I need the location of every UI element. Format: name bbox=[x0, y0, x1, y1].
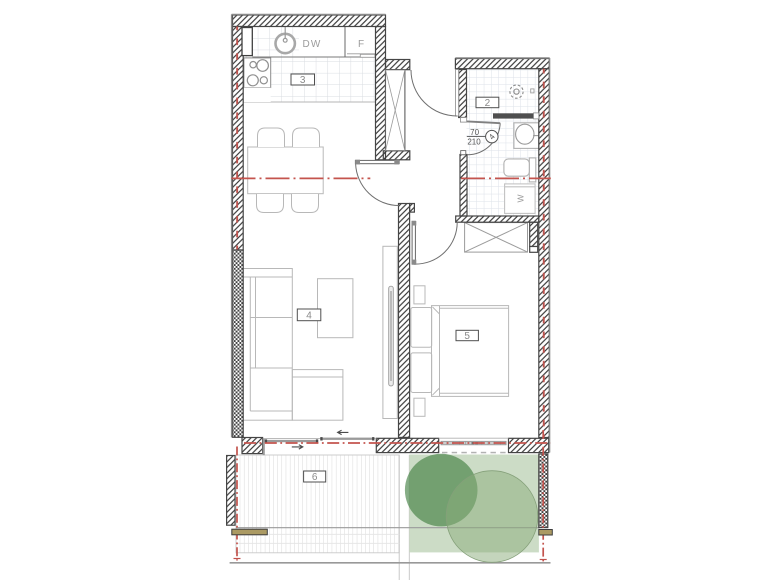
svg-text:3: 3 bbox=[300, 75, 306, 86]
svg-text:4: 4 bbox=[306, 311, 312, 322]
svg-text:5: 5 bbox=[464, 331, 470, 342]
svg-text:W: W bbox=[516, 194, 526, 202]
svg-text:210: 210 bbox=[467, 138, 481, 147]
svg-text:70: 70 bbox=[470, 128, 479, 137]
svg-text:2: 2 bbox=[485, 98, 491, 109]
svg-text:6: 6 bbox=[312, 472, 318, 483]
svg-text:DW: DW bbox=[302, 39, 321, 50]
svg-text:F: F bbox=[358, 39, 364, 50]
